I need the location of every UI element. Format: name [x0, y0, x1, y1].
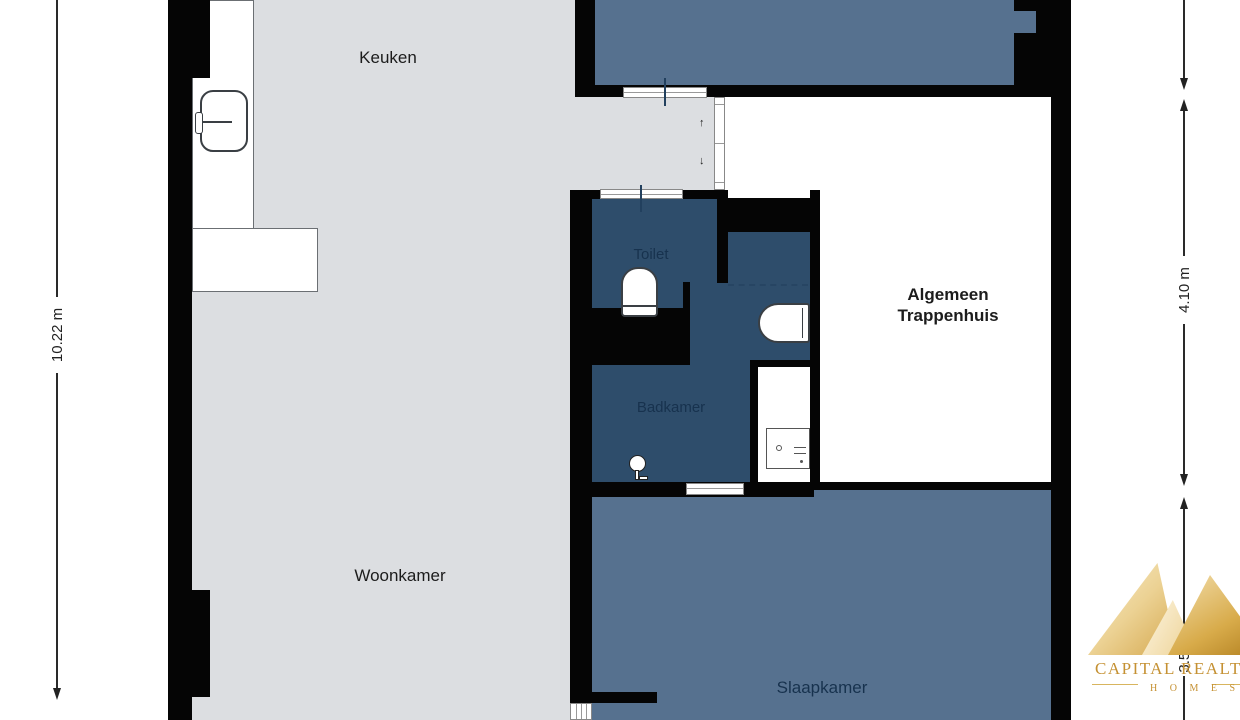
- dim-line-left-lower: [56, 373, 58, 690]
- hall-arrow-down-icon: ↓: [699, 156, 705, 166]
- wash-basin-edge-line: [802, 308, 804, 338]
- dim-line-right-seg1: [1183, 0, 1185, 80]
- wall-left-top-chunk: [168, 0, 210, 78]
- wall-stairwell-left: [810, 190, 820, 483]
- kitchen-counter-horizontal: [192, 228, 318, 292]
- room-label-woonkamer: Woonkamer: [330, 566, 470, 586]
- wall-niche-left: [750, 367, 758, 483]
- wall-shower-top-chunk: [728, 198, 810, 232]
- wall-livingroom-bedroom: [570, 490, 592, 703]
- shower-divider-dashed-line: [728, 284, 808, 286]
- floorplan-canvas: ↑ ↓ Keuken Toilet Badkamer Woonkamer Sla…: [0, 0, 1240, 720]
- washing-machine-dot: [800, 460, 803, 463]
- dim-line-right-seg2: [1183, 111, 1185, 256]
- hall-door-line-top: [715, 104, 724, 105]
- wash-basin-icon: [758, 303, 810, 343]
- hall-sliding-door: [714, 97, 725, 190]
- logo-rule-left: [1092, 684, 1138, 685]
- dim-arrow-right-4-icon: [1180, 497, 1188, 509]
- bedroom-door-sill: [686, 483, 744, 495]
- wall-bedroom-stub: [592, 692, 657, 703]
- room-label-trappenhuis: Algemeen Trappenhuis: [858, 284, 1038, 326]
- wall-left: [168, 0, 192, 720]
- toilet-tank-line: [623, 305, 656, 307]
- toilet-door-tick: [640, 185, 642, 212]
- wall-toilet-right: [717, 198, 728, 283]
- hallway-floor: [575, 96, 725, 190]
- dim-arrow-left-bottom-icon: [53, 688, 61, 700]
- balcony-room: [595, 0, 1014, 89]
- kitchen-faucet-spout-icon: [202, 121, 232, 123]
- dim-arrow-right-2-icon: [1180, 99, 1188, 111]
- bedroom-door-line-3: [586, 704, 587, 719]
- dim-arrow-right-3-icon: [1180, 474, 1188, 486]
- bedroom-door-line-1: [576, 704, 577, 719]
- room-label-slaapkamer: Slaapkamer: [752, 678, 892, 698]
- wall-left-pier: [192, 590, 210, 697]
- logo-homes-text: H O M E S: [1150, 683, 1240, 694]
- trappenhuis-line2: Trappenhuis: [858, 305, 1038, 326]
- wall-stairwell-bottom: [814, 482, 1051, 490]
- washing-machine-icon: [766, 428, 810, 469]
- shower-foot-icon: [639, 476, 648, 480]
- balcony-door-tick: [664, 78, 666, 106]
- wall-niche-top: [750, 360, 810, 367]
- wall-kitchen-balcony: [575, 0, 595, 89]
- kitchen-faucet-base-icon: [195, 112, 203, 134]
- bedroom-door-track-line: [687, 488, 743, 489]
- logo-brand-text: CAPITAL REALTY: [1095, 659, 1240, 679]
- room-label-toilet: Toilet: [601, 246, 701, 263]
- hall-door-line-mid: [715, 143, 724, 144]
- dim-line-left-upper: [56, 0, 58, 297]
- wall-toilet-step: [683, 282, 690, 308]
- toilet-bowl-icon: [621, 267, 658, 317]
- dim-line-right-seg3: [1183, 324, 1185, 476]
- bedroom-sliding-door: [570, 703, 592, 720]
- trappenhuis-line1: Algemeen: [858, 284, 1038, 305]
- stairwell-main-area: [820, 198, 1051, 483]
- wall-complex-left: [570, 190, 592, 490]
- dim-label-left: 10.22 m: [49, 300, 65, 370]
- dim-arrow-right-1-icon: [1180, 78, 1188, 90]
- balcony-right-notch: [1014, 11, 1036, 33]
- washing-machine-line-2: [794, 453, 806, 454]
- bedroom-door-line-2: [581, 704, 582, 719]
- hall-arrow-up-icon: ↑: [699, 118, 705, 128]
- dim-label-right-upper: 4.10 m: [1176, 255, 1192, 325]
- room-label-keuken: Keuken: [328, 48, 448, 68]
- room-label-badkamer: Badkamer: [611, 399, 731, 416]
- washing-machine-line-1: [794, 447, 806, 448]
- watermark-logo: CAPITAL REALTY H O M E S: [1080, 545, 1240, 710]
- hall-door-line-bottom: [715, 182, 724, 183]
- wall-right: [1051, 0, 1071, 720]
- stairwell-upper-area: [725, 96, 1051, 198]
- washing-machine-dial-icon: [776, 445, 782, 451]
